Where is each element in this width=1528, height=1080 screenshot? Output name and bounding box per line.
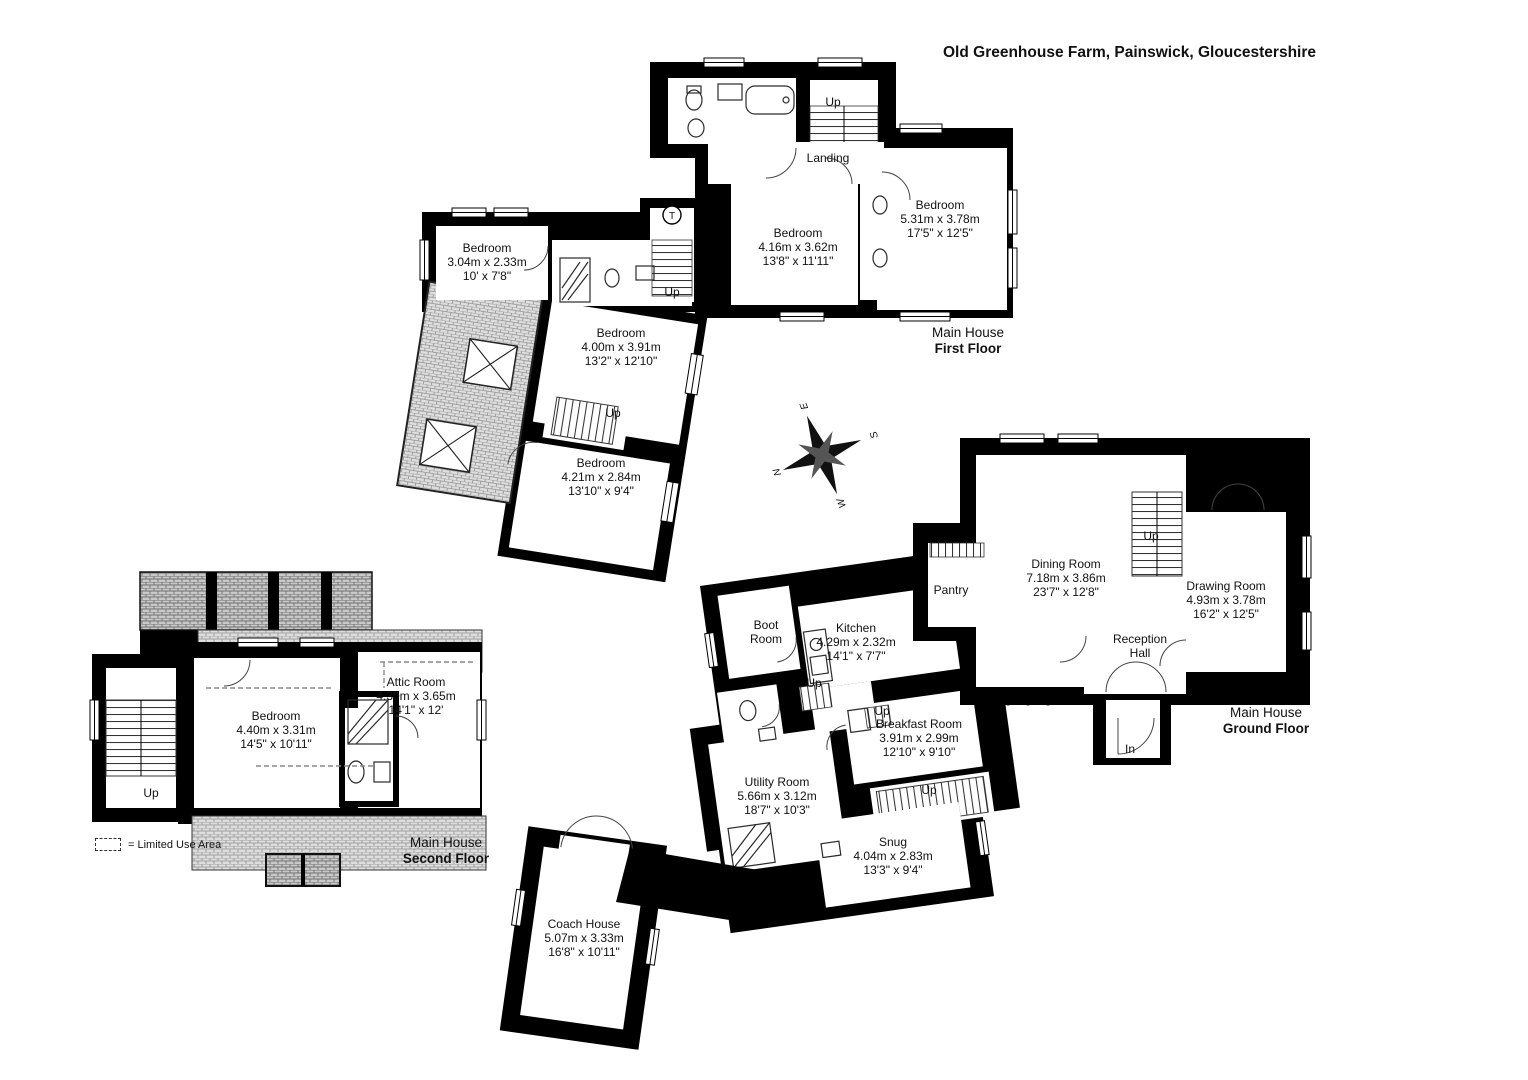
up-label: Up <box>921 783 936 797</box>
floor-caption-first: Main House First Floor <box>932 325 1004 357</box>
limited-use-area-symbol <box>95 838 121 851</box>
room-label-bedroom-421: Bedroom 4.21m x 2.84m 13'10" x 9'4" <box>561 456 640 498</box>
room-size-metric: 4.29m x 2.32m <box>816 635 895 649</box>
compass-w: W <box>835 495 849 509</box>
floorplan-page: T <box>0 0 1528 1080</box>
first-floor-plan: T <box>389 58 1017 583</box>
floor-name: Ground Floor <box>1223 721 1309 737</box>
room-size-imperial: 14'1" x 7'7" <box>816 649 895 663</box>
room-size-imperial: 12'10" x 9'10" <box>876 745 962 759</box>
room-size-metric: 4.21m x 2.84m <box>561 470 640 484</box>
room-name: Bedroom <box>561 456 640 470</box>
up-label: Up <box>1143 529 1158 543</box>
room-size-imperial: 10' x 7'8" <box>447 269 526 283</box>
room-size-imperial: 14'1" x 12' <box>376 703 455 717</box>
room-label-bedroom-304: Bedroom 3.04m x 2.33m 10' x 7'8" <box>447 241 526 283</box>
room-label-landing: Landing <box>807 151 850 165</box>
room-name: Utility Room <box>737 775 816 789</box>
room-size-imperial: 16'8" x 10'11" <box>544 945 623 959</box>
building-name: Main House <box>403 835 489 851</box>
room-name: Reception Hall <box>1104 632 1176 660</box>
room-size-metric: 3.04m x 2.33m <box>447 255 526 269</box>
building-name: Main House <box>932 325 1004 341</box>
room-size-metric: 5.66m x 3.12m <box>737 789 816 803</box>
up-label: Up <box>874 704 889 718</box>
room-name: Boot Room <box>742 618 790 646</box>
in-label: In <box>1125 742 1135 756</box>
room-label-utility-room: Utility Room 5.66m x 3.12m 18'7" x 10'3" <box>737 775 816 817</box>
room-name: Bedroom <box>758 226 837 240</box>
room-label-drawing-room: Drawing Room 4.93m x 3.78m 16'2" x 12'5" <box>1186 579 1265 621</box>
room-label-snug: Snug 4.04m x 2.83m 13'3" x 9'4" <box>853 835 932 877</box>
room-name: Bedroom <box>900 198 979 212</box>
room-size-metric: 4.04m x 2.83m <box>853 849 932 863</box>
first-floor-wing <box>389 272 710 583</box>
room-size-imperial: 13'8" x 11'11" <box>758 254 837 268</box>
compass-e: E <box>798 401 811 411</box>
room-name: Kitchen <box>816 621 895 635</box>
room-name: Bedroom <box>447 241 526 255</box>
room-label-bedroom-400: Bedroom 4.00m x 3.91m 13'2" x 12'10" <box>581 326 660 368</box>
room-label-kitchen: Kitchen 4.29m x 2.32m 14'1" x 7'7" <box>816 621 895 663</box>
room-size-imperial: 13'2" x 12'10" <box>581 354 660 368</box>
room-size-imperial: 13'10" x 9'4" <box>561 484 640 498</box>
room-size-imperial: 23'7" x 12'8" <box>1026 585 1105 599</box>
up-label: Up <box>143 786 158 800</box>
room-name: Coach House <box>544 917 623 931</box>
page-title: Old Greenhouse Farm, Painswick, Gloucest… <box>943 44 1316 62</box>
room-size-metric: 7.18m x 3.86m <box>1026 571 1105 585</box>
skylight <box>463 339 517 390</box>
legend-text: = Limited Use Area <box>128 839 221 851</box>
up-label: Up <box>825 95 840 109</box>
room-size-metric: 4.93m x 3.78m <box>1186 593 1265 607</box>
floor-caption-second: Main House Second Floor <box>403 835 489 867</box>
room-size-metric: 4.40m x 3.31m <box>236 723 315 737</box>
room-label-dining-room: Dining Room 7.18m x 3.86m 23'7" x 12'8" <box>1026 557 1105 599</box>
room-size-metric: 5.07m x 3.33m <box>544 931 623 945</box>
room-size-metric: 4.16m x 3.62m <box>758 240 837 254</box>
room-name: Bedroom <box>581 326 660 340</box>
room-size-metric: 5.31m x 3.78m <box>900 212 979 226</box>
building-name: Main House <box>1223 705 1309 721</box>
pantry-shelves <box>930 543 984 557</box>
room-name: Drawing Room <box>1186 579 1265 593</box>
room-name: Dining Room <box>1026 557 1105 571</box>
room-label-pantry: Pantry <box>934 583 969 597</box>
room-name: Breakfast Room <box>876 717 962 731</box>
room-size-imperial: 16'2" x 12'5" <box>1186 607 1265 621</box>
room-size-imperial: 17'5" x 12'5" <box>900 226 979 240</box>
room-label-bedroom-440: Bedroom 4.40m x 3.31m 14'5" x 10'11" <box>236 709 315 751</box>
compass-n: N <box>771 466 784 477</box>
room-label-boot-room: Boot Room <box>742 618 790 646</box>
room-name: Attic Room <box>376 675 455 689</box>
room-label-bedroom-416: Bedroom 4.16m x 3.62m 13'8" x 11'11" <box>758 226 837 268</box>
floor-name: Second Floor <box>403 851 489 867</box>
tank-letter: T <box>669 211 675 222</box>
room-size-imperial: 18'7" x 10'3" <box>737 803 816 817</box>
room-label-coach-house: Coach House 5.07m x 3.33m 16'8" x 10'11" <box>544 917 623 959</box>
room-label-attic-room: Attic Room 4.30m x 3.65m 14'1" x 12' <box>376 675 455 717</box>
room-size-metric: 4.30m x 3.65m <box>376 689 455 703</box>
up-label: Up <box>605 406 620 420</box>
up-label: Up <box>664 285 679 299</box>
skylight <box>420 419 477 472</box>
room-name: Bedroom <box>236 709 315 723</box>
room-name: Snug <box>853 835 932 849</box>
room-size-imperial: 13'3" x 9'4" <box>853 863 932 877</box>
room-size-metric: 4.00m x 3.91m <box>581 340 660 354</box>
roof-area <box>140 572 372 630</box>
floor-name: First Floor <box>932 341 1004 357</box>
compass-s: S <box>868 429 881 439</box>
room-label-breakfast-room: Breakfast Room 3.91m x 2.99m 12'10" x 9'… <box>876 717 962 759</box>
room-size-metric: 3.91m x 2.99m <box>876 731 962 745</box>
up-label: Up <box>806 676 821 690</box>
room-label-bedroom-531: Bedroom 5.31m x 3.78m 17'5" x 12'5" <box>900 198 979 240</box>
compass-icon: N S E W <box>753 381 901 527</box>
room-label-reception-hall: Reception Hall <box>1104 632 1176 660</box>
floorplan-drawing: T <box>0 0 1528 1080</box>
room-size-imperial: 14'5" x 10'11" <box>236 737 315 751</box>
floor-caption-ground: Main House Ground Floor <box>1223 705 1309 737</box>
